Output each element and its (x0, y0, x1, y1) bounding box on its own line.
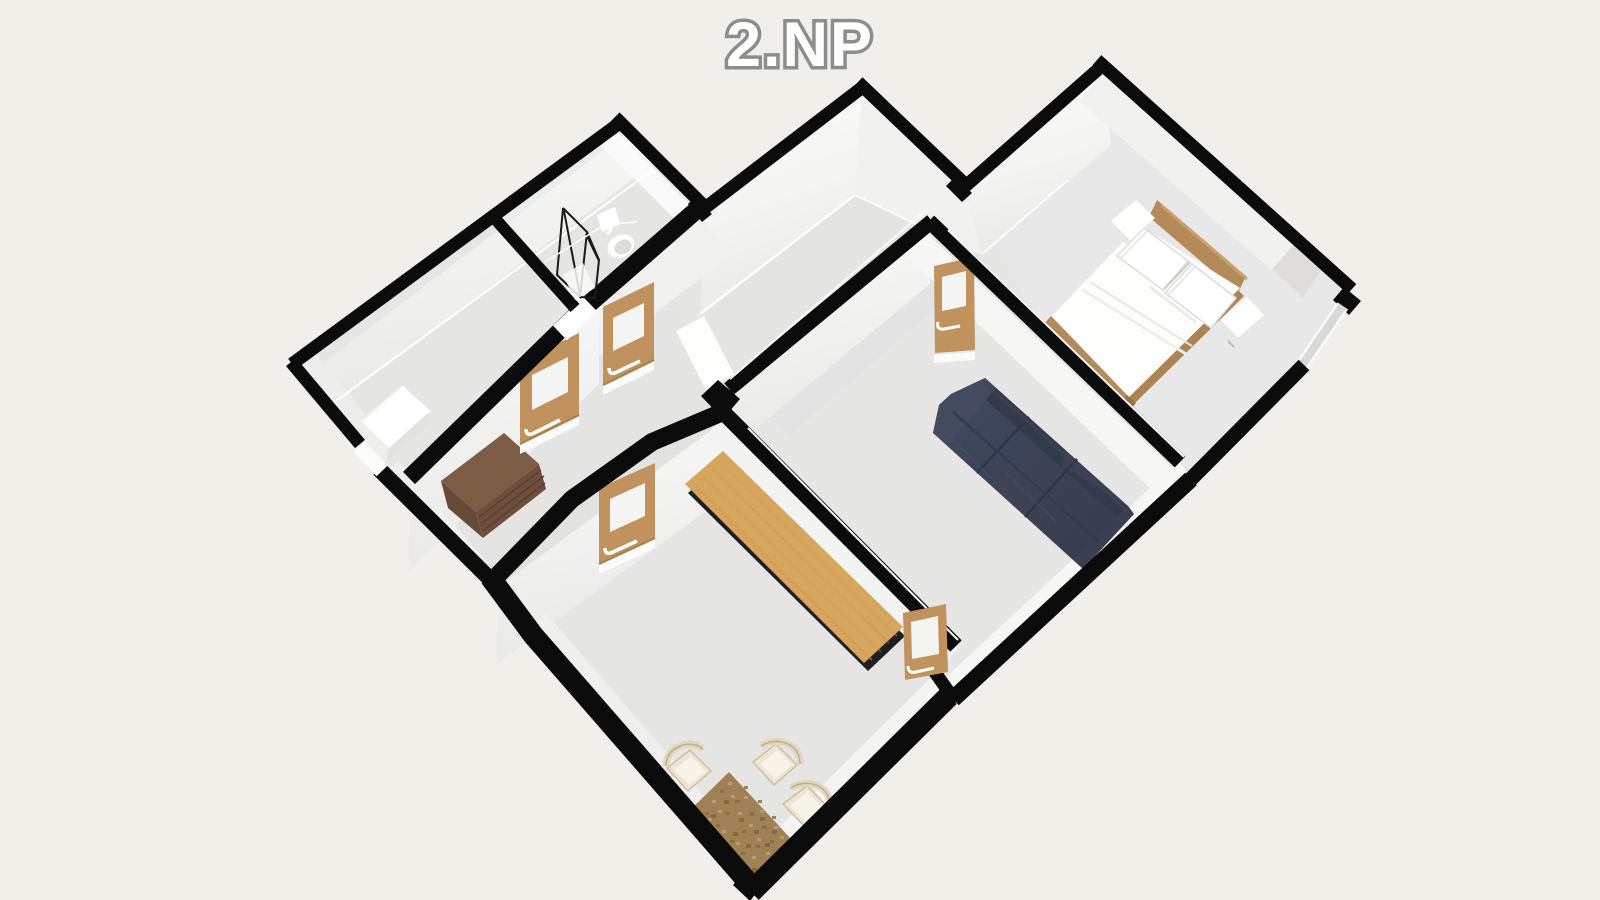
svg-text:2.NP: 2.NP (726, 10, 874, 80)
